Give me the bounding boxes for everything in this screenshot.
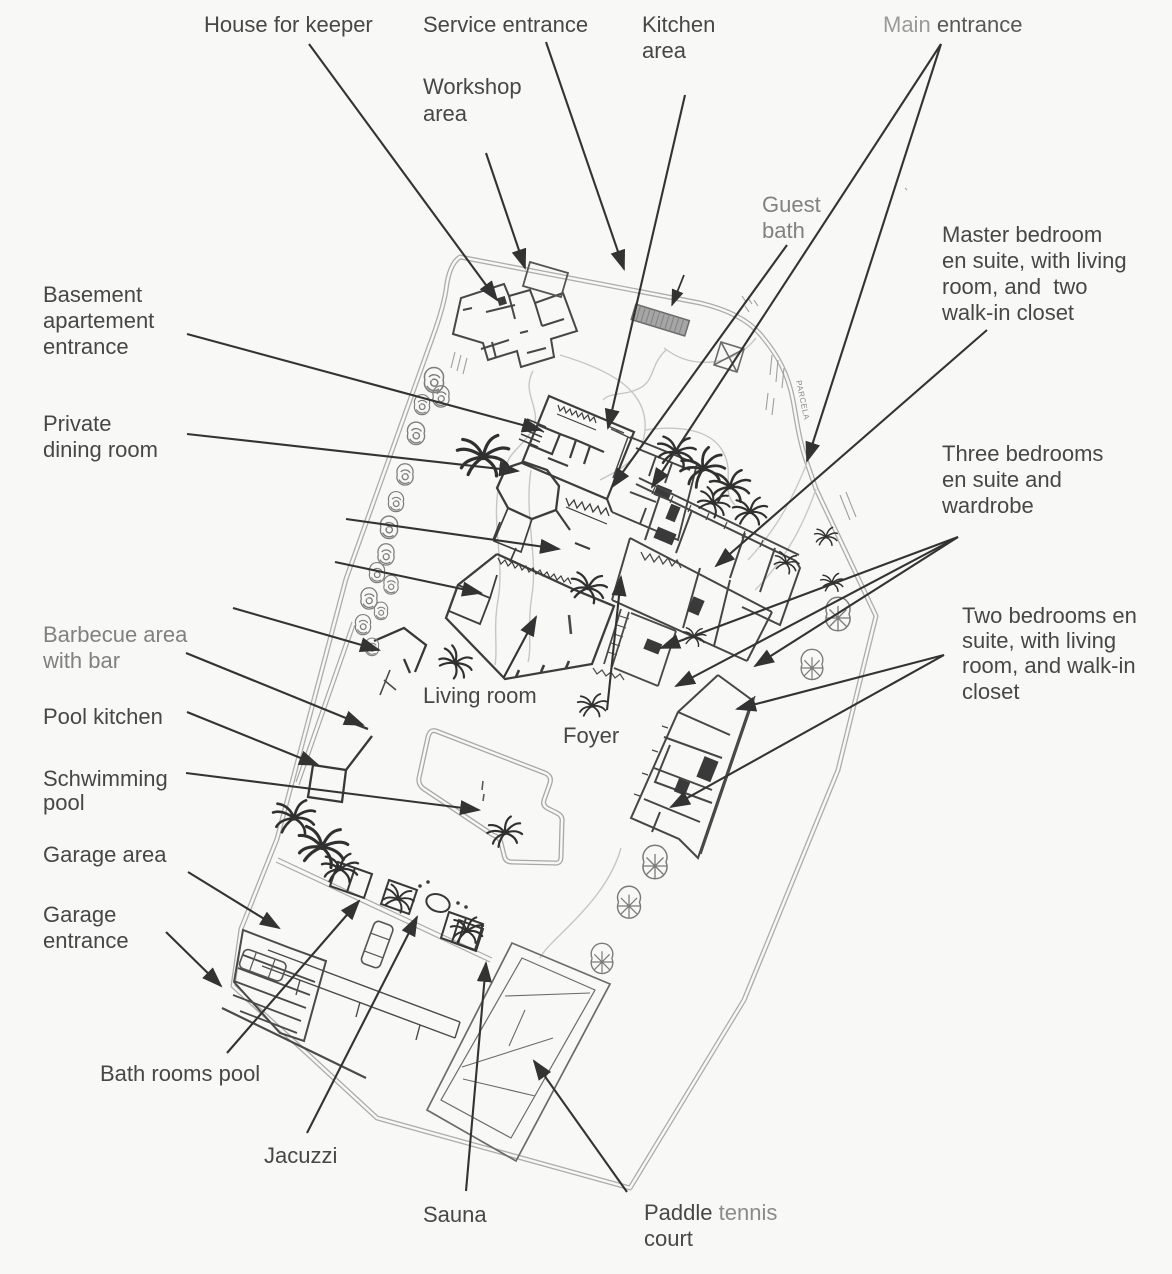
svg-text:room, and walk-in: room, and walk-in	[962, 653, 1136, 678]
svg-text:Main entrance: Main entrance	[883, 12, 1022, 37]
svg-text:Master bedroom: Master bedroom	[942, 222, 1102, 247]
svg-text:en suite and: en suite and	[942, 467, 1062, 492]
svg-text:wardrobe: wardrobe	[941, 493, 1034, 518]
svg-text:House for keeper: House for keeper	[204, 12, 373, 37]
svg-text:area: area	[642, 38, 687, 63]
svg-text:room, and two: room, and two	[942, 274, 1088, 299]
svg-text:apartement: apartement	[43, 308, 154, 333]
svg-text:Two bedrooms en: Two bedrooms en	[962, 603, 1137, 628]
svg-text:Jacuzzi: Jacuzzi	[264, 1143, 337, 1168]
svg-text:walk-in closet: walk-in closet	[941, 300, 1074, 325]
svg-text:en suite, with living: en suite, with living	[942, 248, 1127, 273]
svg-text:Paddle tennis: Paddle tennis	[644, 1200, 777, 1225]
svg-text:Private: Private	[43, 411, 111, 436]
svg-text:Three bedrooms: Three bedrooms	[942, 441, 1103, 466]
svg-text:Guest: Guest	[762, 192, 821, 217]
svg-text:Sauna: Sauna	[423, 1202, 487, 1227]
svg-text:area: area	[423, 101, 468, 126]
svg-text:court: court	[644, 1226, 693, 1251]
svg-text:bath: bath	[762, 218, 805, 243]
svg-text:with bar: with bar	[42, 648, 120, 673]
svg-text:entrance: entrance	[43, 334, 129, 359]
svg-text:Barbecue area: Barbecue area	[43, 622, 188, 647]
svg-text:closet: closet	[962, 679, 1019, 704]
svg-text:Pool kitchen: Pool kitchen	[43, 704, 163, 729]
svg-text:Garage: Garage	[43, 902, 116, 927]
svg-text:Bath rooms pool: Bath rooms pool	[100, 1061, 260, 1086]
svg-text:Basement: Basement	[43, 282, 142, 307]
svg-text:pool: pool	[43, 790, 85, 815]
svg-text:suite, with living: suite, with living	[962, 628, 1116, 653]
svg-text:Workshop: Workshop	[423, 74, 522, 99]
svg-text:Garage area: Garage area	[43, 842, 167, 867]
svg-text:Living room: Living room	[423, 683, 537, 708]
svg-text:Kitchen: Kitchen	[642, 12, 715, 37]
svg-text:Foyer: Foyer	[563, 723, 619, 748]
svg-text:entrance: entrance	[43, 928, 129, 953]
svg-text:Service entrance: Service entrance	[423, 12, 588, 37]
svg-text:Schwimming: Schwimming	[43, 766, 168, 791]
svg-text:dining room: dining room	[43, 437, 158, 462]
